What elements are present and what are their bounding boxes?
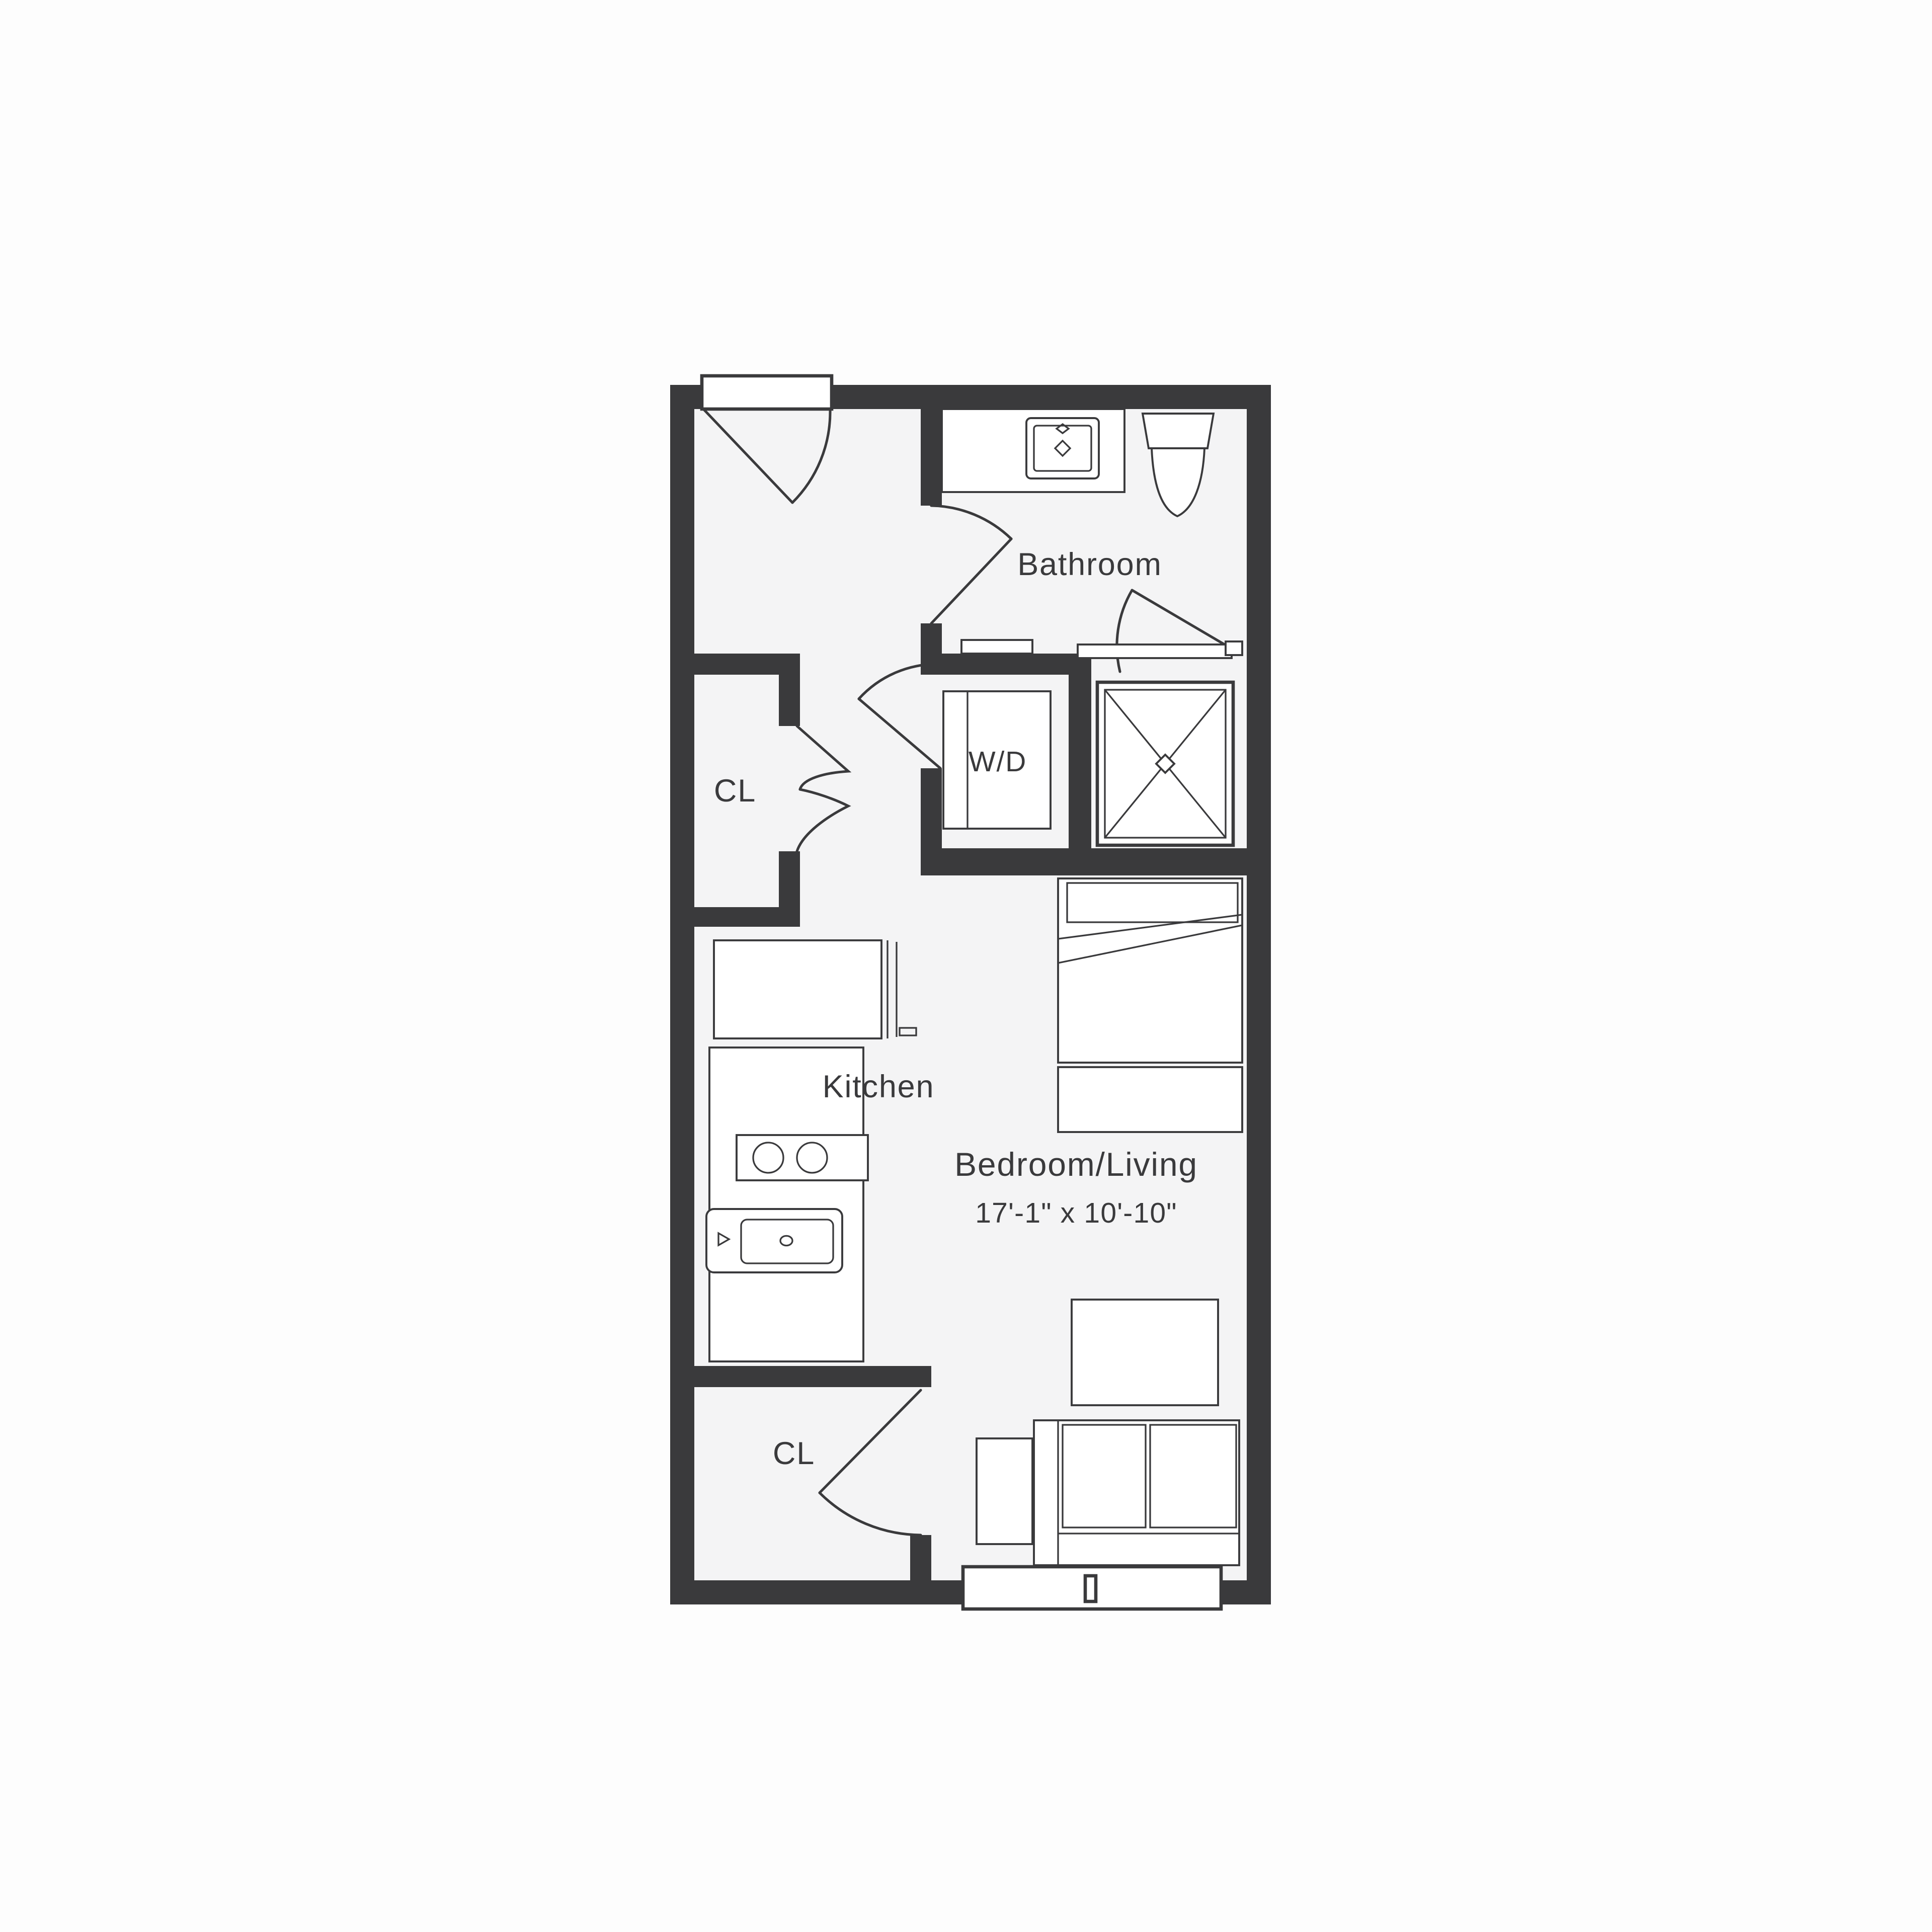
closet-hall-label: CL: [714, 773, 756, 809]
wall-closet-bottom: [670, 907, 800, 927]
wall-closet-stub-upper: [779, 675, 800, 726]
wall-entry-closet-stub: [910, 1535, 931, 1580]
sofa: [1034, 1420, 1239, 1565]
wall-wd-top: [942, 654, 1091, 675]
wall-shower-west: [1069, 673, 1091, 848]
coffee-table: [1072, 1300, 1218, 1405]
kitchen-sink: [706, 1209, 842, 1272]
entry-door-opening: [702, 376, 832, 409]
kitchen-label: Kitchen: [823, 1069, 935, 1104]
window-mullion: [1085, 1576, 1096, 1601]
floor-plan: Bathroom CL W/D Kitchen Bedroom/Living 1…: [0, 0, 1932, 1932]
closet-entry-label: CL: [773, 1436, 815, 1471]
bedroom-living-label: Bedroom/Living: [954, 1146, 1198, 1183]
wall-bedroom-north: [921, 848, 1247, 875]
wall-closet-top: [670, 654, 800, 675]
bedroom-living-dimensions: 17'-1" x 10'-10": [975, 1197, 1177, 1229]
bed: [1058, 878, 1242, 1132]
wall-hall-bathroom-stub: [921, 623, 942, 675]
wall-entry-closet-north: [670, 1366, 931, 1387]
washer-shelf: [961, 640, 1032, 654]
wall-closet-stub-lower: [779, 851, 800, 907]
bathroom-label: Bathroom: [1017, 547, 1162, 582]
bathroom-sink: [1026, 418, 1099, 478]
cooktop: [737, 1135, 868, 1180]
shower-door-jamb: [1226, 641, 1242, 655]
floor-plan-page: Bathroom CL W/D Kitchen Bedroom/Living 1…: [0, 0, 1932, 1932]
washer-dryer-label: W/D: [969, 746, 1027, 778]
wall-hall-bathroom-upper: [921, 409, 942, 506]
shower-curb: [1078, 645, 1232, 658]
side-table: [977, 1438, 1032, 1544]
bed-footboard: [1058, 1067, 1242, 1132]
